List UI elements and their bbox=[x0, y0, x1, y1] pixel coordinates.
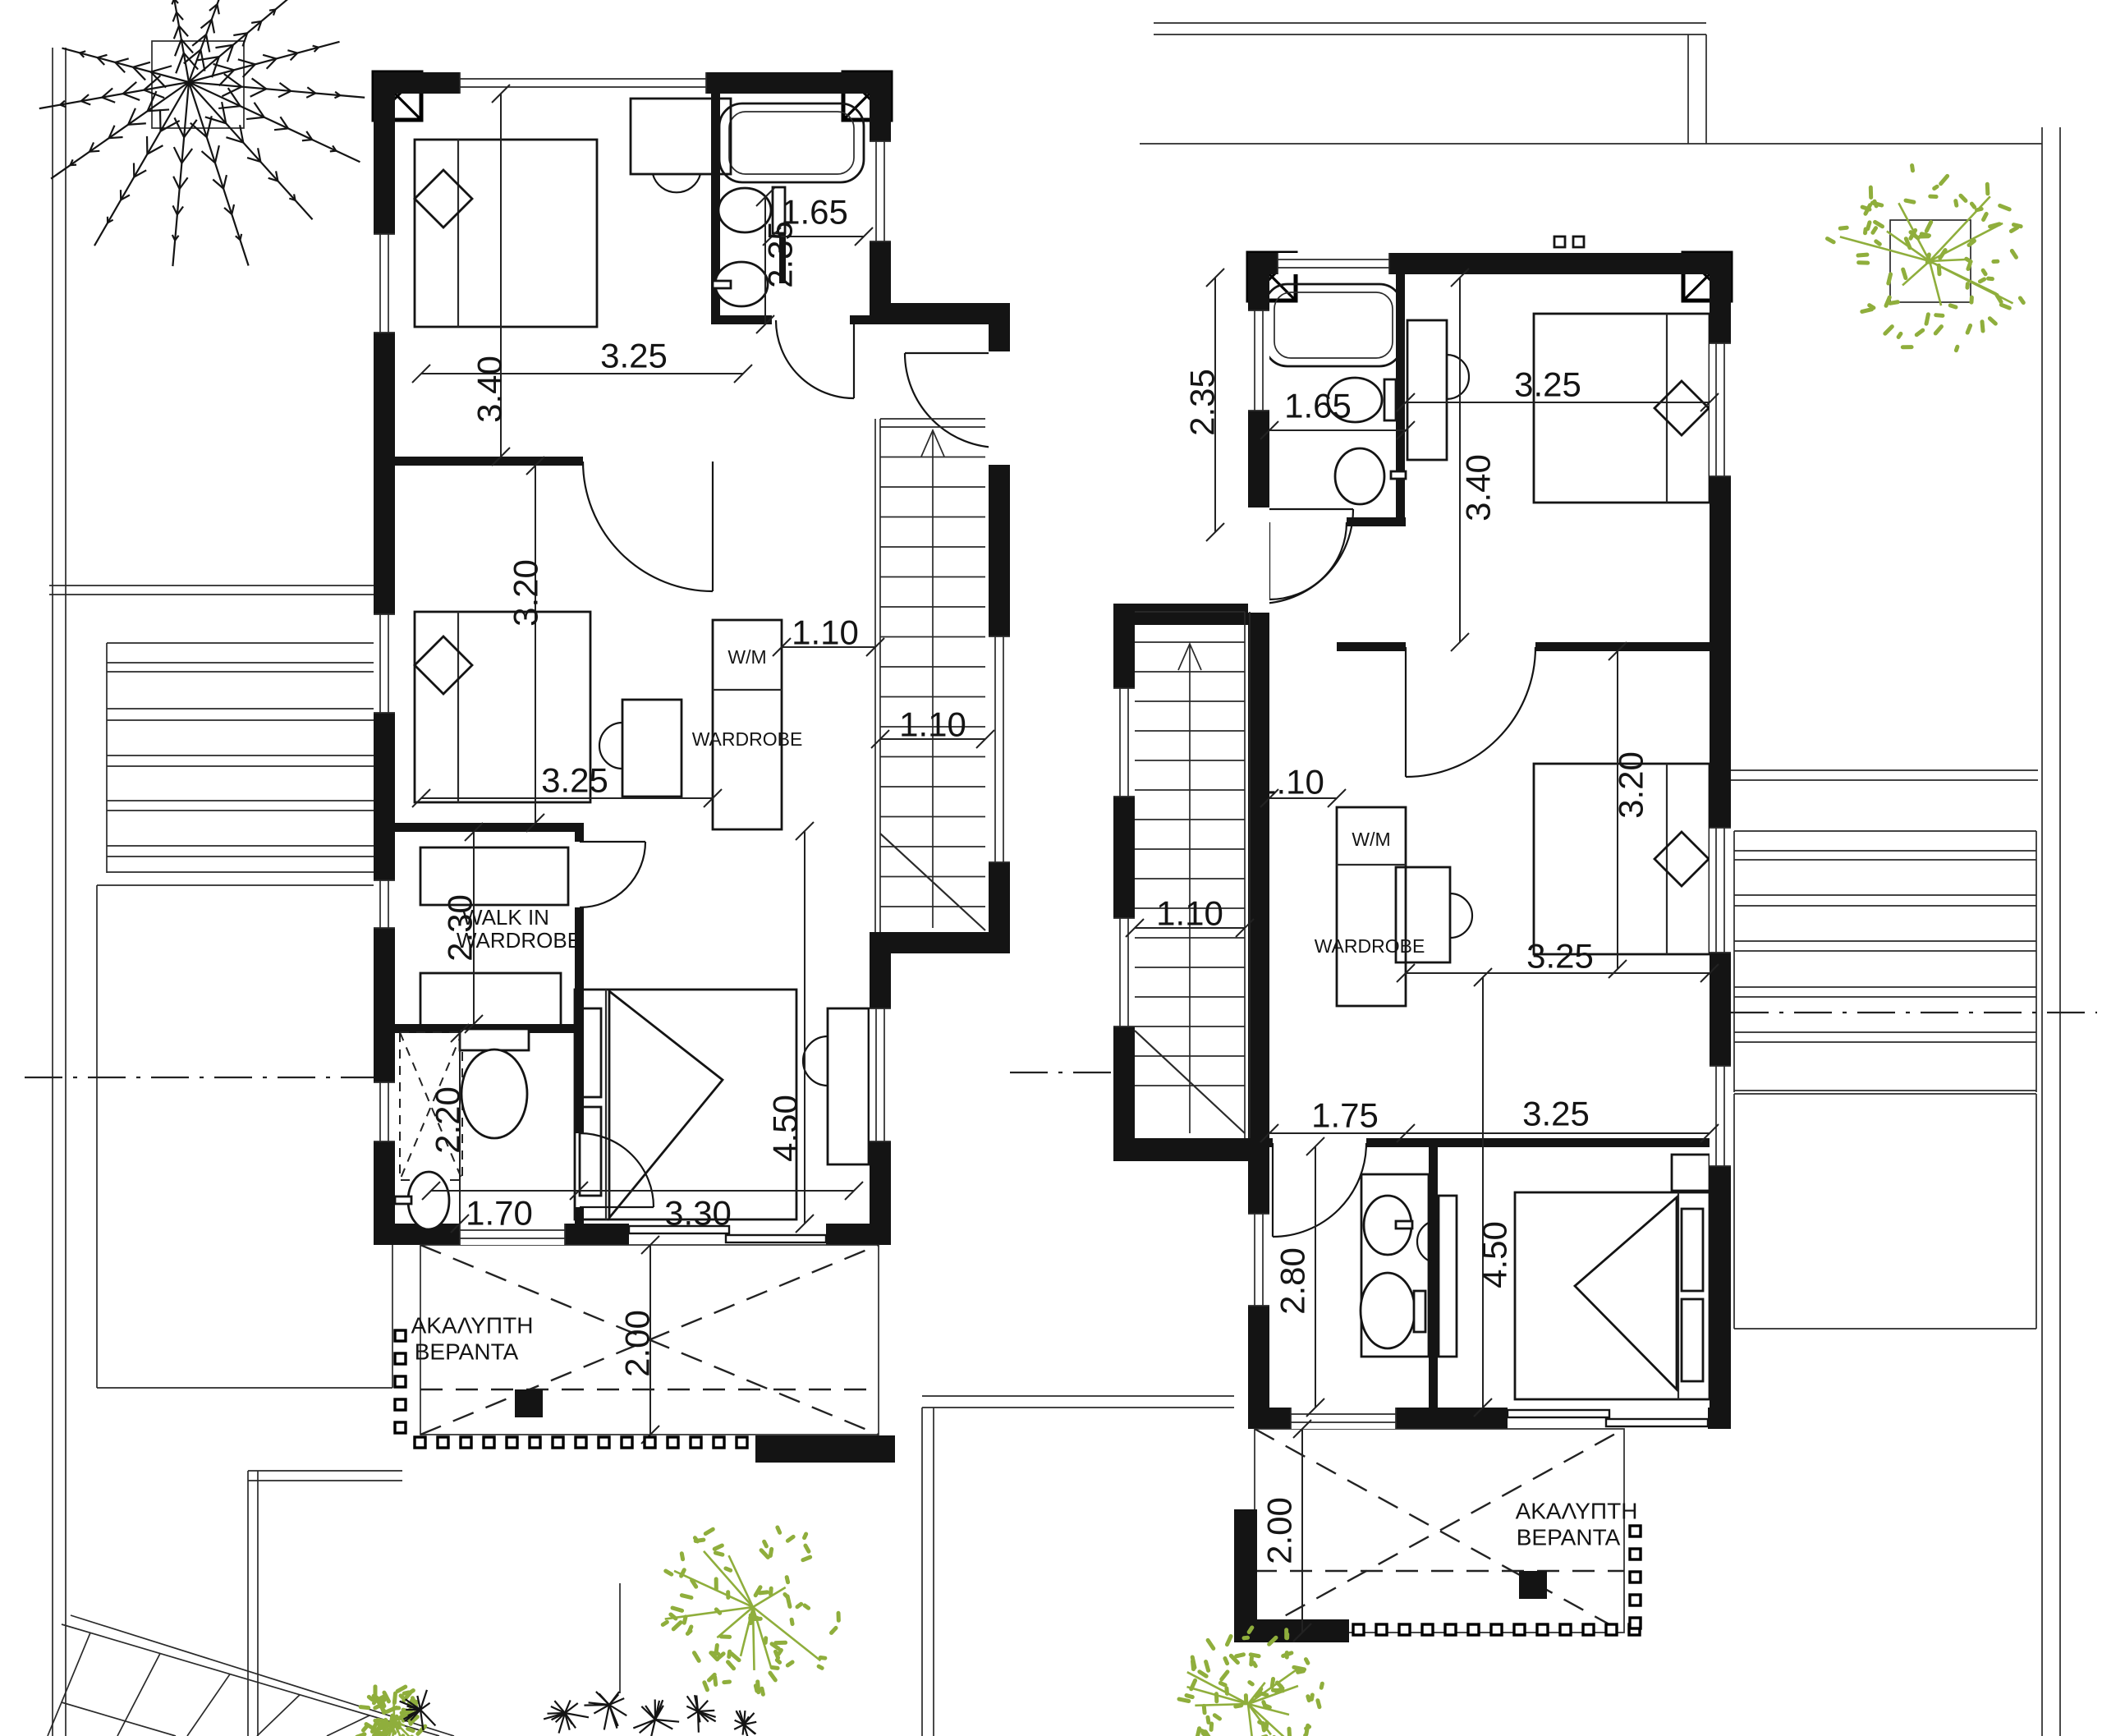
dim-left-bath-depth: 2.35 bbox=[761, 221, 800, 288]
nightstand bbox=[1672, 1155, 1710, 1191]
bed-single-1 bbox=[415, 140, 597, 327]
door-bedroom2 bbox=[583, 462, 713, 591]
door-bath bbox=[776, 320, 854, 398]
toilet-symbol bbox=[460, 1029, 529, 1138]
label-left-wardrobe: WARDROBE bbox=[692, 728, 803, 750]
dim-left-walkin-depth: 2.30 bbox=[441, 894, 480, 962]
dim-right-hall-width: 1.10 bbox=[1257, 763, 1324, 801]
dim-right-veranda-depth: 2.00 bbox=[1260, 1497, 1299, 1564]
dotted-borders bbox=[395, 1330, 1641, 1635]
sink-symbol bbox=[713, 262, 768, 306]
floor-plan-sheet: 1.65 2.35 3.25 3.40 3.20 3.25 1.10 1.10 … bbox=[0, 0, 2102, 1736]
dim-left-master-width: 3.30 bbox=[664, 1194, 732, 1233]
stairs bbox=[875, 419, 1250, 1138]
dim-right-master-width: 3.25 bbox=[1522, 1095, 1590, 1133]
dim-left-wc-depth: 2.20 bbox=[429, 1086, 467, 1154]
dim-right-bedroom2-width: 3.25 bbox=[1526, 937, 1594, 976]
dim-left-stair-width: 1.10 bbox=[899, 705, 966, 744]
dim-right-stair-width: 1.10 bbox=[1156, 894, 1223, 933]
label-right-laundry: W/M bbox=[1352, 829, 1390, 850]
label-left-laundry: W/M bbox=[727, 646, 766, 668]
sliding-door bbox=[1508, 1410, 1609, 1417]
walkin-shelf-2 bbox=[420, 973, 561, 1027]
dim-left-hall-width: 1.10 bbox=[792, 613, 859, 652]
label-right-veranda-1: ΑΚΑΛΥΠΤΗ bbox=[1516, 1499, 1638, 1524]
bed-double bbox=[1515, 1155, 1710, 1399]
door-bedroom2 bbox=[1406, 647, 1535, 777]
sliding-door bbox=[726, 1235, 826, 1242]
site-boundaries bbox=[25, 23, 2097, 1736]
label-left-veranda-2: ΒΕΡΑΝΤΑ bbox=[415, 1339, 519, 1365]
dim-right-bath2-width: 1.75 bbox=[1311, 1096, 1379, 1135]
door-bath2 bbox=[1273, 1143, 1366, 1237]
bed-double bbox=[575, 990, 796, 1219]
garden-wall bbox=[755, 1435, 895, 1463]
toilet-symbol bbox=[1361, 1273, 1425, 1348]
dim-right-master-depth: 4.50 bbox=[1476, 1221, 1514, 1288]
dim-right-bath-width: 1.65 bbox=[1284, 387, 1352, 425]
door-entry bbox=[905, 353, 999, 448]
vent bbox=[1554, 237, 1565, 247]
dim-left-bedroom2-depth: 3.20 bbox=[507, 559, 545, 627]
label-right-veranda-2: ΒΕΡΑΝΤΑ bbox=[1517, 1525, 1621, 1550]
dim-left-veranda-depth: 2.00 bbox=[618, 1310, 657, 1377]
desk-2 bbox=[599, 700, 682, 797]
dim-right-bath-depth: 2.35 bbox=[1183, 369, 1222, 436]
door-bath bbox=[1269, 522, 1347, 599]
villa-left bbox=[374, 72, 1010, 1463]
dim-left-master-depth: 4.50 bbox=[766, 1095, 805, 1162]
dim-right-bedroom1-width: 3.25 bbox=[1514, 365, 1581, 404]
bed-single-1 bbox=[1534, 314, 1710, 503]
dim-left-bedroom1-depth: 3.40 bbox=[470, 356, 509, 423]
label-right-wardrobe: WARDROBE bbox=[1315, 935, 1425, 957]
dim-right-bedroom2-depth: 3.20 bbox=[1612, 751, 1650, 819]
column bbox=[1519, 1571, 1547, 1599]
dim-right-bath2-depth: 2.80 bbox=[1274, 1247, 1312, 1315]
sink-symbol bbox=[1335, 448, 1406, 504]
vent bbox=[1573, 237, 1584, 247]
dim-left-bedroom2-width: 3.25 bbox=[541, 761, 608, 800]
sliding-door bbox=[1606, 1419, 1708, 1426]
dim-left-bedroom1-width: 3.25 bbox=[600, 337, 668, 375]
desk-master bbox=[803, 1008, 869, 1164]
floor-plan-drawing: 1.65 2.35 3.25 3.40 3.20 3.25 1.10 1.10 … bbox=[0, 0, 2102, 1736]
label-left-veranda-1: ΑΚΑΛΥΠΤΗ bbox=[411, 1313, 534, 1339]
dim-right-bedroom1-depth: 3.40 bbox=[1459, 454, 1498, 521]
door-walkin bbox=[580, 842, 645, 907]
dim-left-wc-width: 1.70 bbox=[466, 1194, 533, 1233]
column bbox=[515, 1389, 543, 1417]
